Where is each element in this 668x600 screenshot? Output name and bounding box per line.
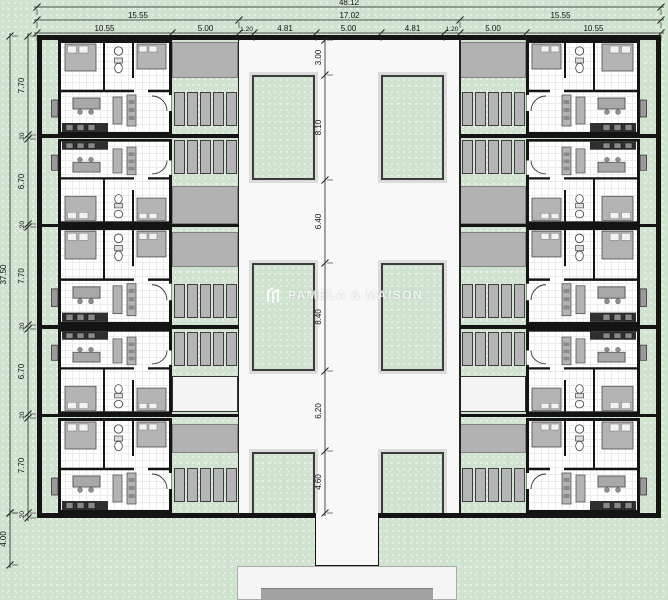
parking-stall — [200, 332, 211, 366]
house-unit — [58, 40, 172, 135]
dimension-line — [236, 17, 243, 24]
pavement-apron — [172, 424, 238, 453]
parking-stall — [488, 92, 499, 126]
parking-stall — [501, 284, 512, 318]
parking-strip — [172, 418, 238, 513]
parking-strip — [172, 40, 238, 135]
parking-stall — [213, 468, 224, 502]
house-floorplan — [526, 227, 640, 325]
house-unit — [526, 329, 640, 414]
landscape-island — [381, 452, 444, 513]
parking-stall — [488, 332, 499, 366]
site-wall-bottom-left — [37, 513, 315, 518]
site-wall-top — [37, 35, 661, 40]
house-unit — [58, 418, 172, 513]
parking-stall — [187, 284, 198, 318]
house-unit — [58, 227, 172, 325]
house-floorplan — [58, 227, 172, 325]
parking-stall — [475, 92, 486, 126]
parking-stall — [488, 468, 499, 502]
parking-stall — [488, 140, 499, 174]
parking-stall — [200, 468, 211, 502]
dimension-label: 15.55 — [128, 11, 149, 20]
parking-stall — [226, 332, 237, 366]
sidewalk-edge-line — [238, 40, 240, 513]
house-unit — [526, 418, 640, 513]
parking-stall — [475, 332, 486, 366]
parking-stall — [213, 332, 224, 366]
parking-stall — [174, 332, 185, 366]
dimension-line — [25, 415, 32, 422]
pavement-apron — [172, 376, 238, 412]
parking-stall — [213, 92, 224, 126]
dimension-line — [25, 33, 32, 40]
parking-stall — [213, 284, 224, 318]
house-floorplan — [526, 418, 640, 513]
parking-stall — [501, 332, 512, 366]
dimension-label: 4.81 — [277, 24, 293, 33]
party-wall-line — [460, 414, 661, 417]
parking-stall — [187, 92, 198, 126]
house-floorplan — [526, 139, 640, 224]
house-floorplan — [526, 40, 640, 135]
parking-stall — [200, 140, 211, 174]
dimension-label: .20 — [19, 411, 26, 420]
parking-stall — [174, 92, 185, 126]
parking-strip — [460, 329, 526, 414]
dimension-label: 6.70 — [17, 173, 26, 189]
parking-stall — [475, 284, 486, 318]
parking-stall — [226, 140, 237, 174]
watermark: PAMELA & MAISON — [266, 286, 423, 304]
dimension-line — [25, 136, 32, 143]
dimension-line — [25, 221, 32, 228]
pavement-apron — [460, 424, 526, 453]
dimension-line — [25, 132, 32, 139]
party-wall-line — [460, 325, 661, 329]
house-unit — [526, 139, 640, 224]
dimension-label: 7.70 — [17, 457, 26, 473]
parking-stall — [462, 140, 473, 174]
house-unit — [58, 329, 172, 414]
landscape-island — [381, 75, 444, 180]
dimension-label: 48.12 — [339, 0, 360, 7]
house-floorplan — [58, 139, 172, 224]
site-wall-right — [656, 35, 661, 518]
dimension-label: 4.00 — [0, 531, 8, 547]
landscape-island — [252, 75, 315, 180]
parking-stall — [174, 284, 185, 318]
dimension-label: .20 — [19, 511, 26, 520]
parking-stall — [462, 468, 473, 502]
watermark-logo-icon — [266, 286, 282, 304]
party-wall-line — [37, 414, 239, 417]
dimension-label: 1.20 — [240, 26, 253, 33]
parking-stall — [174, 140, 185, 174]
sidewalk-edge-line — [459, 40, 461, 513]
parking-stall — [514, 140, 525, 174]
party-wall-line — [37, 325, 239, 329]
house-floorplan — [58, 418, 172, 513]
dimension-line — [658, 17, 665, 24]
pavement-apron — [460, 376, 526, 412]
dimension-label: 7.70 — [17, 77, 26, 93]
house-unit — [58, 139, 172, 224]
site-wall-left — [37, 35, 42, 518]
dimension-label: 4.81 — [405, 24, 421, 33]
pavement-apron — [460, 42, 526, 78]
dimension-line — [34, 17, 41, 24]
pavement-apron — [172, 42, 238, 78]
house-unit — [526, 40, 640, 135]
dimension-label: 5.00 — [341, 24, 357, 33]
site-wall-bottom-right — [379, 513, 661, 518]
dimension-line — [34, 4, 41, 11]
parking-stall — [475, 468, 486, 502]
dimension-line — [7, 33, 14, 40]
parking-strip — [460, 227, 526, 325]
parking-stall — [462, 284, 473, 318]
dimension-line — [7, 562, 14, 569]
dimension-label: .20 — [19, 322, 26, 331]
parking-stall — [200, 92, 211, 126]
parking-strip — [172, 139, 238, 224]
dimension-line — [25, 224, 32, 231]
parking-stall — [462, 92, 473, 126]
dimension-line — [7, 510, 14, 517]
dimension-label: 17.02 — [339, 11, 360, 20]
parking-stall — [514, 284, 525, 318]
parking-stall — [226, 468, 237, 502]
dimension-line — [7, 510, 14, 517]
dimension-line — [457, 17, 464, 24]
landscape-island — [252, 263, 315, 371]
parking-stall — [226, 284, 237, 318]
parking-stall — [174, 468, 185, 502]
parking-stall — [475, 140, 486, 174]
house-floorplan — [58, 40, 172, 135]
dimension-label: 37.50 — [0, 264, 8, 285]
landscape-island — [252, 452, 315, 513]
parking-stall — [501, 140, 512, 174]
house-unit — [526, 227, 640, 325]
dimension-label: 1.20 — [446, 26, 459, 33]
site-plan-canvas: PAMELA & MAISON — [0, 0, 668, 600]
parking-stall — [514, 92, 525, 126]
parking-stall — [488, 284, 499, 318]
parking-stall — [514, 332, 525, 366]
dimension-line — [25, 322, 32, 329]
watermark-text: PAMELA & MAISON — [288, 288, 423, 302]
pavement-apron — [460, 232, 526, 267]
house-floorplan — [526, 329, 640, 414]
parking-stall — [213, 140, 224, 174]
parking-stall — [501, 468, 512, 502]
dimension-label: 5.00 — [485, 24, 501, 33]
dimension-line — [25, 326, 32, 333]
pavement-apron — [460, 186, 526, 224]
pavement-apron — [172, 232, 238, 267]
dimension-line — [25, 411, 32, 418]
parking-strip — [172, 329, 238, 414]
parking-stall — [462, 332, 473, 366]
dimension-label: 5.00 — [198, 24, 214, 33]
dimension-label: 15.55 — [550, 11, 571, 20]
dimension-label: 6.70 — [17, 363, 26, 379]
parking-stall — [226, 92, 237, 126]
house-floorplan — [58, 329, 172, 414]
parking-strip — [172, 227, 238, 325]
parking-stall — [501, 92, 512, 126]
entry-road-stub — [315, 513, 379, 566]
dimension-label: 10.55 — [94, 24, 115, 33]
landscape-island — [381, 263, 444, 371]
parking-stall — [514, 468, 525, 502]
dimension-label: .20 — [19, 221, 26, 230]
dimension-line — [25, 515, 32, 522]
dimension-label: 10.55 — [583, 24, 604, 33]
parking-strip — [460, 418, 526, 513]
parking-stall — [187, 332, 198, 366]
parking-strip — [460, 139, 526, 224]
dimension-line — [658, 4, 665, 11]
parking-stall — [187, 140, 198, 174]
dimension-label: .20 — [19, 132, 26, 141]
pavement-apron — [172, 186, 238, 224]
entry-driveway-strip — [261, 588, 433, 600]
dimension-line — [25, 510, 32, 517]
parking-stall — [187, 468, 198, 502]
parking-strip — [460, 40, 526, 135]
dimension-label: 7.70 — [17, 268, 26, 284]
parking-stall — [200, 284, 211, 318]
